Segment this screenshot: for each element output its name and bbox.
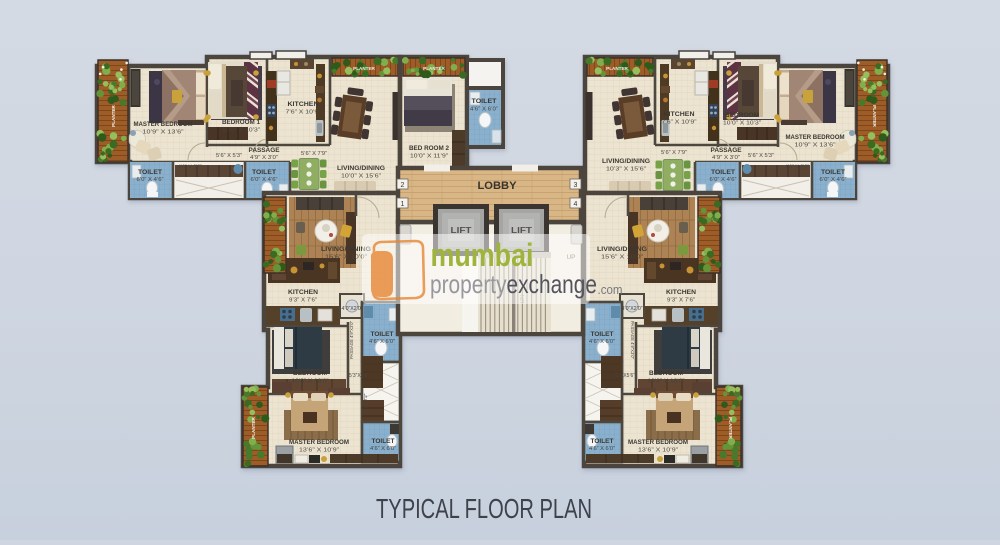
svg-text:PASSAGE 4’9”X3’0”: PASSAGE 4’9”X3’0”: [630, 321, 635, 359]
svg-text:4’6” X 2’3”: 4’6” X 2’3”: [785, 165, 809, 171]
svg-text:KITCHEN: KITCHEN: [288, 101, 319, 108]
svg-text:BEDROOM: BEDROOM: [649, 370, 683, 377]
svg-text:TOILET: TOILET: [371, 332, 394, 338]
svg-text:4’6” X 2’3”: 4’6” X 2’3”: [178, 165, 202, 171]
svg-text:PASSAGE: PASSAGE: [249, 147, 280, 154]
svg-text:.com: .com: [598, 282, 623, 297]
svg-text:7’6” X 10’9”: 7’6” X 10’9”: [662, 120, 697, 126]
svg-text:7’6” X 10’9”: 7’6” X 10’9”: [286, 110, 321, 116]
svg-text:mumbai: mumbai: [431, 237, 534, 273]
svg-text:5’6” X 5’3”: 5’6” X 5’3”: [216, 153, 242, 159]
svg-text:TOILET: TOILET: [711, 169, 735, 176]
svg-text:MASTER BEDROOM: MASTER BEDROOM: [786, 134, 845, 141]
svg-text:PASSAGE: PASSAGE: [711, 147, 742, 154]
svg-text:10’0” X 15’6”: 10’0” X 15’6”: [341, 174, 381, 180]
svg-text:10’0” X 10’3”: 10’0” X 10’3”: [222, 128, 260, 134]
svg-text:PLANTER: PLANTER: [353, 66, 375, 71]
svg-text:propertyexchange: propertyexchange: [430, 269, 597, 299]
svg-text:TOILET: TOILET: [591, 332, 614, 338]
svg-text:4’6” X 6’0”: 4’6” X 6’0”: [470, 107, 498, 113]
svg-text:10’0” X 11’9”: 10’0” X 11’9”: [410, 154, 448, 160]
svg-text:LIVING/DINING: LIVING/DINING: [597, 246, 647, 253]
svg-text:5’6” X 7’9”: 5’6” X 7’9”: [661, 150, 687, 156]
svg-text:10’9” X 13’6”: 10’9” X 13’6”: [795, 143, 836, 149]
svg-text:6’0” X 4’6”: 6’0” X 4’6”: [710, 177, 737, 183]
svg-text:6’0” X 4’6”: 6’0” X 4’6”: [820, 177, 847, 183]
svg-text:4’6” X 6’0”: 4’6” X 6’0”: [589, 446, 615, 452]
svg-text:13’6” X 10’9”: 13’6” X 10’9”: [299, 448, 339, 454]
svg-text:15’6” X 10’0”: 15’6” X 10’0”: [601, 255, 643, 261]
svg-text:4’0”X2’0”: 4’0”X2’0”: [622, 306, 643, 312]
svg-text:4’9” X 3’0”: 4’9” X 3’0”: [712, 155, 740, 161]
svg-text:LIVING/DINING: LIVING/DINING: [602, 158, 650, 165]
svg-text:BEDROOM: BEDROOM: [725, 112, 759, 119]
svg-text:15’6” X 10’0”: 15’6” X 10’0”: [325, 255, 367, 261]
svg-text:5’3”X5’6”: 5’3”X5’6”: [615, 373, 635, 379]
svg-text:BEDROOM 1: BEDROOM 1: [222, 119, 260, 126]
svg-text:10’9” X 13’6”: 10’9” X 13’6”: [143, 130, 184, 136]
svg-text:13’6” X 10’9”: 13’6” X 10’9”: [638, 448, 678, 454]
svg-text:BEDROOM: BEDROOM: [293, 370, 327, 377]
svg-text:MASTER BEDROOM: MASTER BEDROOM: [628, 439, 688, 446]
svg-text:6’0” X 4’6”: 6’0” X 4’6”: [137, 177, 164, 183]
svg-text:4’6” X 6’0”: 4’6” X 6’0”: [370, 446, 396, 452]
svg-text:TOILET: TOILET: [138, 169, 162, 176]
svg-text:MASTER BEDROOM: MASTER BEDROOM: [289, 439, 349, 446]
svg-text:10’3” X 10’0”: 10’3” X 10’0”: [648, 379, 685, 385]
svg-text:TOILET: TOILET: [472, 98, 497, 105]
svg-text:4’0”X2’0”: 4’0”X2’0”: [342, 306, 363, 312]
svg-text:KITCHEN: KITCHEN: [666, 289, 696, 296]
svg-text:5’3”X5’6”: 5’3”X5’6”: [349, 373, 369, 379]
svg-text:TYPICAL FLOOR PLAN: TYPICAL FLOOR PLAN: [376, 493, 592, 524]
svg-text:PLANTER: PLANTER: [606, 66, 628, 71]
svg-text:PLANTER: PLANTER: [251, 416, 256, 438]
svg-text:10’0” X 10’3”: 10’0” X 10’3”: [723, 121, 761, 127]
svg-text:1: 1: [401, 201, 405, 208]
svg-text:MASTER BEDROOM: MASTER BEDROOM: [134, 121, 193, 128]
svg-text:LIFT: LIFT: [511, 226, 532, 235]
svg-text:BED ROOM 2: BED ROOM 2: [409, 145, 449, 152]
svg-text:10’3” X 10’0”: 10’3” X 10’0”: [292, 379, 329, 385]
svg-text:LIVING/DINING: LIVING/DINING: [337, 165, 385, 172]
svg-text:4: 4: [574, 201, 578, 208]
svg-text:TOILET: TOILET: [821, 169, 845, 176]
svg-text:PLANTER: PLANTER: [111, 104, 116, 126]
svg-text:9’3” X 7’6”: 9’3” X 7’6”: [289, 298, 317, 304]
svg-text:4’6” X 6’0”: 4’6” X 6’0”: [369, 339, 395, 345]
svg-text:KITCHEN: KITCHEN: [664, 111, 695, 118]
svg-text:9’3” X 7’6”: 9’3” X 7’6”: [667, 298, 695, 304]
svg-text:TOILET: TOILET: [372, 439, 395, 445]
svg-text:2: 2: [401, 182, 405, 189]
svg-text:4’6” X 6’0”: 4’6” X 6’0”: [589, 339, 615, 345]
svg-text:LIFT: LIFT: [451, 226, 472, 235]
svg-text:KITCHEN: KITCHEN: [288, 289, 318, 296]
svg-text:4’7”X2’2”: 4’7”X2’2”: [363, 393, 368, 412]
svg-text:TOILET: TOILET: [252, 169, 276, 176]
svg-text:10’3” X 15’6”: 10’3” X 15’6”: [606, 167, 646, 173]
svg-text:PLANTER: PLANTER: [423, 66, 445, 71]
svg-text:5’6” X 5’3”: 5’6” X 5’3”: [748, 153, 774, 159]
svg-text:PLANTER: PLANTER: [728, 417, 733, 439]
svg-text:PASSAGE 4’9”X3’0”: PASSAGE 4’9”X3’0”: [349, 321, 354, 359]
svg-text:5’6” X 7’9”: 5’6” X 7’9”: [301, 151, 327, 157]
svg-text:LOBBY: LOBBY: [478, 180, 518, 192]
svg-text:TOILET: TOILET: [591, 439, 614, 445]
svg-text:6’0” X 4’6”: 6’0” X 4’6”: [251, 177, 278, 183]
svg-text:PLANTER: PLANTER: [872, 105, 877, 127]
svg-text:4’9” X 3’0”: 4’9” X 3’0”: [250, 155, 278, 161]
svg-text:3: 3: [574, 182, 578, 189]
